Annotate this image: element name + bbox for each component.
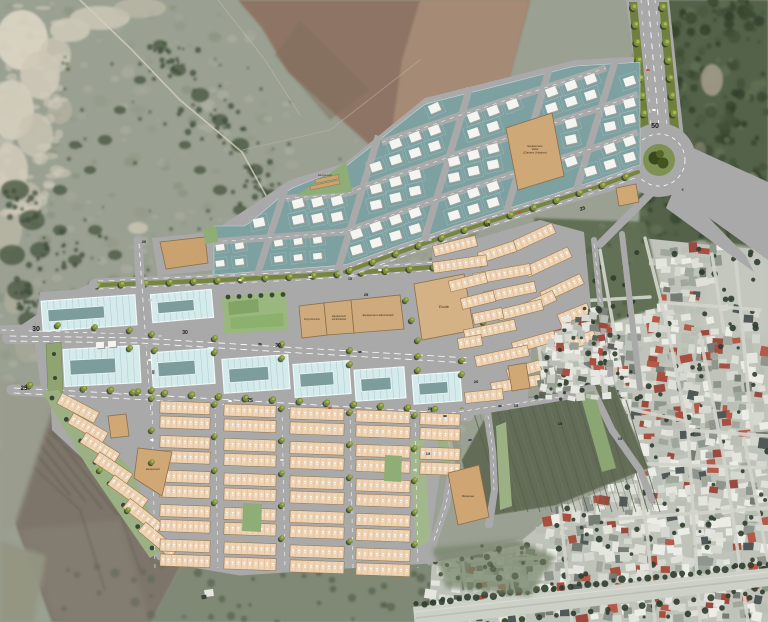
svg-text:Ecole: Ecole <box>439 304 450 309</box>
svg-text:Equipement administratif: Equipement administratif <box>363 313 394 317</box>
svg-text:socioculturel: socioculturel <box>332 317 347 321</box>
svg-text:Foyer-feminin: Foyer-feminin <box>304 317 320 321</box>
svg-text:(Classes Urbaines): (Classes Urbaines) <box>523 150 547 154</box>
svg-text:Equipement: Equipement <box>318 173 332 177</box>
svg-text:Equipement: Equipement <box>146 467 160 471</box>
